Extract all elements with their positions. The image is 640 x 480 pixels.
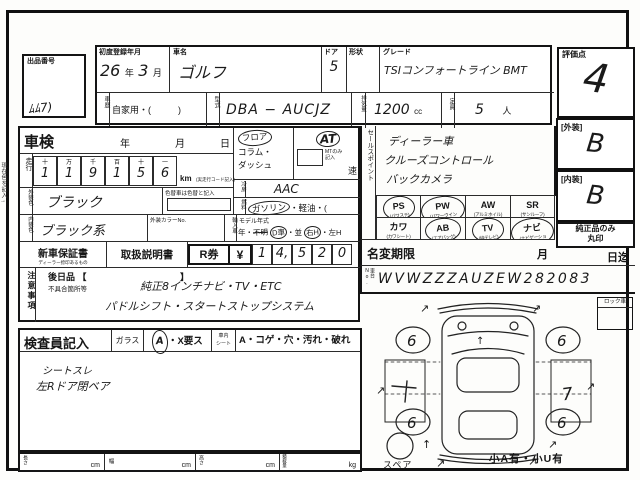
lock-car-box: ロック車 [597, 297, 633, 330]
capacity-label: 定員 [442, 93, 455, 128]
capacity-value: 5 人 [455, 93, 554, 128]
mileage-col-2: 千 [82, 157, 104, 166]
arrow-mark: ↗ [548, 438, 557, 451]
chassis-value: WVWZZZAUZEW282083 [378, 271, 592, 287]
equip-ps: PS(パワステ) [382, 196, 416, 218]
exterior-color-row: 外装色 ブラック 色替車は色替と記入 [20, 188, 234, 215]
grade-cell: グレード TSIコンフォートライン BMT [380, 47, 554, 92]
car-name-label: 車名 [170, 47, 321, 59]
equip-navi: ナビ(ナビゲーション) [511, 218, 555, 240]
dealer-car-circled: D車 [270, 225, 288, 239]
amount-digit-1: 4, [272, 244, 292, 265]
amount-digit-4: 0 [332, 244, 352, 265]
length-label: 長さ [22, 455, 27, 465]
year-unit: 年 [125, 68, 134, 78]
arrow-mark: ↗ [586, 380, 595, 393]
defect-label: 不具合箇所等 [48, 283, 87, 293]
fuel-gasoline-circled: ガソリン [248, 200, 291, 217]
mt-note-line2: 記入 [325, 155, 335, 161]
first-registration-cell: 初度登録年月 26 年 3 月 [97, 47, 170, 92]
genuine-parts-note: 純正品のみ丸印 [556, 222, 635, 248]
notes-block: 注意事項 後日品 【 】 不具合箇所等 純正8インチナビ・TV・ETC パドルシ… [20, 268, 362, 322]
car-name-value: ゴルフ [170, 59, 321, 83]
height-unit: cm [266, 462, 275, 469]
door-value: 5 [322, 59, 346, 75]
model-year-unknown-struck: 不明 [253, 227, 269, 239]
mileage-col-4: 十 [130, 157, 152, 166]
parallel-import-option: ・並 [287, 228, 302, 237]
displacement-number: 1200 [366, 102, 410, 118]
right-handle-circled: 右H [304, 225, 322, 239]
shift-floor-circled: フロア [237, 129, 272, 147]
history-value: 自家用・( ) [110, 93, 207, 128]
first-registration-label: 初度登録年月 [97, 47, 169, 59]
tire-mark-fl: 6 [407, 332, 417, 350]
new-car-warranty-label: 新車保証書 [20, 242, 106, 260]
seat-options: A・コゲ・穴・汚れ・破れ [236, 330, 360, 352]
score-box: 評価点 4 [557, 47, 635, 118]
import-car-label: 輸入車 [224, 215, 237, 242]
sales-point-label-cell: セールスポイント [360, 126, 376, 240]
arrow-mark: ↗ [376, 384, 385, 397]
seat-label-2: シート [216, 341, 231, 347]
aircon-label: 冷房 [235, 181, 246, 197]
model-code-label: 型式 [207, 93, 220, 128]
door-label: ドア [322, 47, 346, 59]
capacity-unit: 人 [488, 106, 511, 116]
main-left-block: 車検 年 月 日 走行 十1 万1 千9 百1 十5 一6 km (実走行コード… [18, 126, 360, 322]
first-registration-year: 26 [100, 61, 120, 80]
transmission-cell: AT MTのみ 記入 速 [294, 128, 362, 180]
mileage-col-1: 万 [58, 157, 80, 166]
vehicle-header-table: 初度登録年月 26 年 3 月 車名 ゴルフ ドア 5 形状 グレード TSIコ… [95, 45, 552, 125]
mileage-label: 走行 [20, 154, 33, 188]
interior-color-value: ブラック系 [40, 220, 105, 239]
sales-point-2: クルーズコントロール [376, 149, 554, 168]
glass-label: ガラス [112, 330, 144, 352]
new-car-warranty-sub: ディーラー捺印あるもの [20, 260, 106, 266]
shaken-day-unit: 日 [220, 135, 230, 150]
score-value: 4 [556, 51, 636, 107]
interior-color-row: 内装色 ブラック系 外装カラーNo. 輸入車 モデル年式 年・不明 D車・並 右… [20, 215, 362, 242]
mileage-digit-3: 1 [106, 166, 128, 181]
model-code-value: DBA − AUCJZ [220, 93, 352, 128]
auction-number-scribble: ﾑﾑ7) [27, 98, 53, 117]
name-change-until-cell: 日迄 [556, 248, 635, 266]
height-label: 高さ [198, 455, 203, 465]
exterior-grade-value: B [557, 125, 635, 163]
name-change-row: 名変期限 月 [360, 240, 556, 266]
aircon-row: 冷房 AAC [234, 180, 362, 198]
warranty-row: 新車保証書 ディーラー捺印あるもの 取扱説明書 R券 ¥ 1 4, 5 2 0 [20, 242, 362, 268]
arrow-mark: ↑ [422, 438, 431, 451]
color-change-note: 色替車は色替と記入 [163, 188, 234, 198]
arrow-mark: ↗ [420, 302, 429, 315]
glass-options: ・X要ス [168, 336, 203, 347]
arrow-mark: ↗ [436, 457, 445, 468]
load-unit: kg [349, 462, 356, 469]
interior-color-label: 内装色 [20, 215, 33, 242]
dimensions-row: 長さ cm 幅 cm 高さ cm 積載量 kg [18, 452, 362, 472]
shaken-row: 車検 年 月 日 [20, 128, 234, 154]
shaken-month-unit: 月 [175, 135, 185, 150]
mileage-col-0: 十 [34, 157, 56, 166]
mileage-digit-5: 6 [154, 166, 176, 181]
first-registration-month: 3 [138, 61, 148, 80]
sales-point-label: セールスポイント [365, 129, 372, 237]
length-unit: cm [91, 462, 100, 469]
equipment-grid: PS(パワステ) PW(パワーウインド) AW(アルミホイル) SR(サンルーフ… [376, 196, 556, 240]
capacity-number: 5 [455, 102, 484, 118]
mileage-digit-2: 9 [82, 166, 104, 181]
mileage-note: (実走行コード記入) [196, 177, 235, 182]
exterior-color-no-label: 外装カラーNo. [148, 215, 224, 225]
shape-label: 形状 [347, 47, 379, 59]
shift-dash: ダッシュ [238, 160, 272, 170]
spare-label: スペア [383, 458, 412, 471]
tire-mark-rl: 6 [407, 414, 417, 432]
door-cell: ドア 5 [322, 47, 347, 92]
fuel-label: 燃料 [235, 199, 246, 214]
notes-handwritten-2: パドルシフト・スタートストップシステム [105, 298, 314, 314]
arrow-mark: ↑ [476, 336, 484, 347]
width-label: 幅 [107, 458, 113, 464]
mileage-col-5: 一 [154, 157, 176, 166]
inspector-title: 検査員記入 [20, 330, 112, 352]
left-handle-option: ・左H [321, 228, 341, 237]
equip-pw: PW(パワーウインド) [421, 196, 466, 218]
inspector-header: 検査員記入 ガラス A・X要ス 車内シート A・コゲ・穴・汚れ・破れ [20, 330, 360, 352]
sales-point-3: バックカメラ [376, 168, 554, 187]
shift-position-cell: フロア コラム・ ダッシュ [234, 128, 294, 180]
tire-mark-fr: 6 [557, 332, 567, 350]
owners-manual-label: 取扱説明書 [107, 242, 188, 268]
notes-label: 注意事項 [20, 268, 36, 322]
at-circled: AT [315, 130, 340, 148]
yen-sign: ¥ [230, 244, 252, 265]
sales-point-1: ディーラー車 [376, 126, 554, 149]
recycle-amount: 1 4, 5 2 0 [252, 244, 352, 265]
lock-car-label: ロック車 [598, 298, 632, 308]
equip-sr: SR(サンルーフ) [516, 196, 550, 218]
glass-a-circled: A [151, 329, 168, 354]
displacement-unit: cc [414, 107, 422, 116]
mileage-digits: 十1 万1 千9 百1 十5 一6 [33, 156, 179, 186]
arrow-mark: ↗ [532, 302, 541, 315]
name-change-until: 日迄 [607, 252, 635, 264]
car-damage-diagram: 6 6 6 6 7 ↗ ↗ ↗ ↗ ↑ ↑ ↗ ↗ ↗ [376, 296, 600, 468]
exterior-color-label: 外装色 [20, 188, 33, 215]
mt-speed-box [297, 149, 323, 166]
width-unit: cm [182, 462, 191, 469]
mileage-col-3: 百 [106, 157, 128, 166]
auction-number-label: 出品番号 [24, 56, 84, 68]
amount-digit-2: 5 [292, 244, 312, 265]
exterior-grade-box: [外装] B [556, 118, 635, 170]
margin-note: 現在色を記入→ [0, 162, 6, 204]
grade-value: TSIコンフォートライン BMT [380, 59, 554, 81]
interior-grade-box: [内装] B [556, 170, 635, 222]
exterior-color-value: ブラック [46, 192, 102, 212]
later-items-label: 後日品 【 [48, 270, 87, 283]
color-change-box [167, 198, 231, 211]
recycle-ticket-label: R券 [188, 244, 230, 265]
model-year-label: モデル年式 [237, 215, 362, 226]
amount-digit-0: 1 [252, 244, 272, 265]
inspector-note-1: シートスレ [42, 362, 92, 377]
small-damage-note: 小A有・小U有 [489, 451, 564, 466]
grade-label: グレード [380, 47, 554, 59]
chassis-row: 車台No. WVWZZZAUZEW282083 [360, 266, 635, 294]
fuel-row: 燃料 ガソリン・軽油・( [234, 198, 362, 215]
displacement-label: 排気量 [352, 93, 366, 128]
auction-sheet: 現在色を記入→ 出品番号 ﾑﾑ7) 初度登録年月 26 年 3 月 車名 ゴルフ… [0, 0, 640, 480]
month-unit: 月 [153, 68, 162, 78]
load-label: 積載量 [282, 454, 287, 468]
name-change-month-unit: 月 [537, 246, 548, 262]
inspector-note-2: 左Rドア閉ベア [36, 378, 110, 394]
history-label: 車歴 [97, 93, 110, 128]
equip-aw: AW(アルミホイル) [469, 196, 507, 218]
mileage-unit: km [180, 174, 192, 183]
equip-leather: カワ(カワシート) [382, 218, 416, 240]
inspector-block: 検査員記入 ガラス A・X要ス 車内シート A・コゲ・穴・汚れ・破れ シートスレ… [18, 328, 362, 452]
inspector-body: シートスレ 左Rドア閉ベア [20, 352, 360, 450]
chassis-label: 車台No. [364, 268, 374, 292]
right-side-mark: 7 [561, 384, 575, 405]
mileage-row: 走行 十1 万1 千9 百1 十5 一6 km (実走行コード記入) [20, 154, 234, 188]
shaken-title: 車検 [20, 128, 58, 155]
car-name-cell: 車名 ゴルフ [170, 47, 322, 92]
equip-tv: TV(純テレビ) [471, 218, 505, 240]
model-code-text: DBA − AUCJZ [220, 102, 331, 118]
displacement-value: 1200 cc [366, 93, 442, 128]
mileage-digit-1: 1 [58, 166, 80, 181]
mileage-digit-0: 1 [34, 166, 56, 181]
auction-number-box: 出品番号 ﾑﾑ7) [22, 54, 86, 118]
model-year-unit: 年・ [238, 228, 253, 237]
equip-airbag: AB(エアバッグ) [424, 218, 462, 240]
shape-cell: 形状 [347, 47, 380, 92]
sales-point-content: ディーラー車 クルーズコントロール バックカメラ [376, 126, 556, 196]
vehicle-header-row2: 車歴 自家用・( ) 型式 DBA − AUCJZ 排気量 1200 cc 定員… [97, 92, 554, 127]
mileage-digit-4: 5 [130, 166, 152, 181]
name-change-label: 名変期限 [367, 245, 415, 262]
interior-grade-value: B [557, 177, 635, 215]
shift-column: コラム・ [238, 147, 272, 157]
history-text: 自家用・( ) [112, 105, 181, 115]
seat-label-1: 車内 [218, 333, 228, 339]
tire-mark-rr: 6 [557, 414, 567, 432]
fuel-options: ・軽油・( [290, 203, 327, 213]
notes-handwritten-1: 純正8インチナビ・TV・ETC [140, 278, 282, 294]
amount-digit-3: 2 [312, 244, 332, 265]
shaken-year-unit: 年 [120, 135, 130, 150]
